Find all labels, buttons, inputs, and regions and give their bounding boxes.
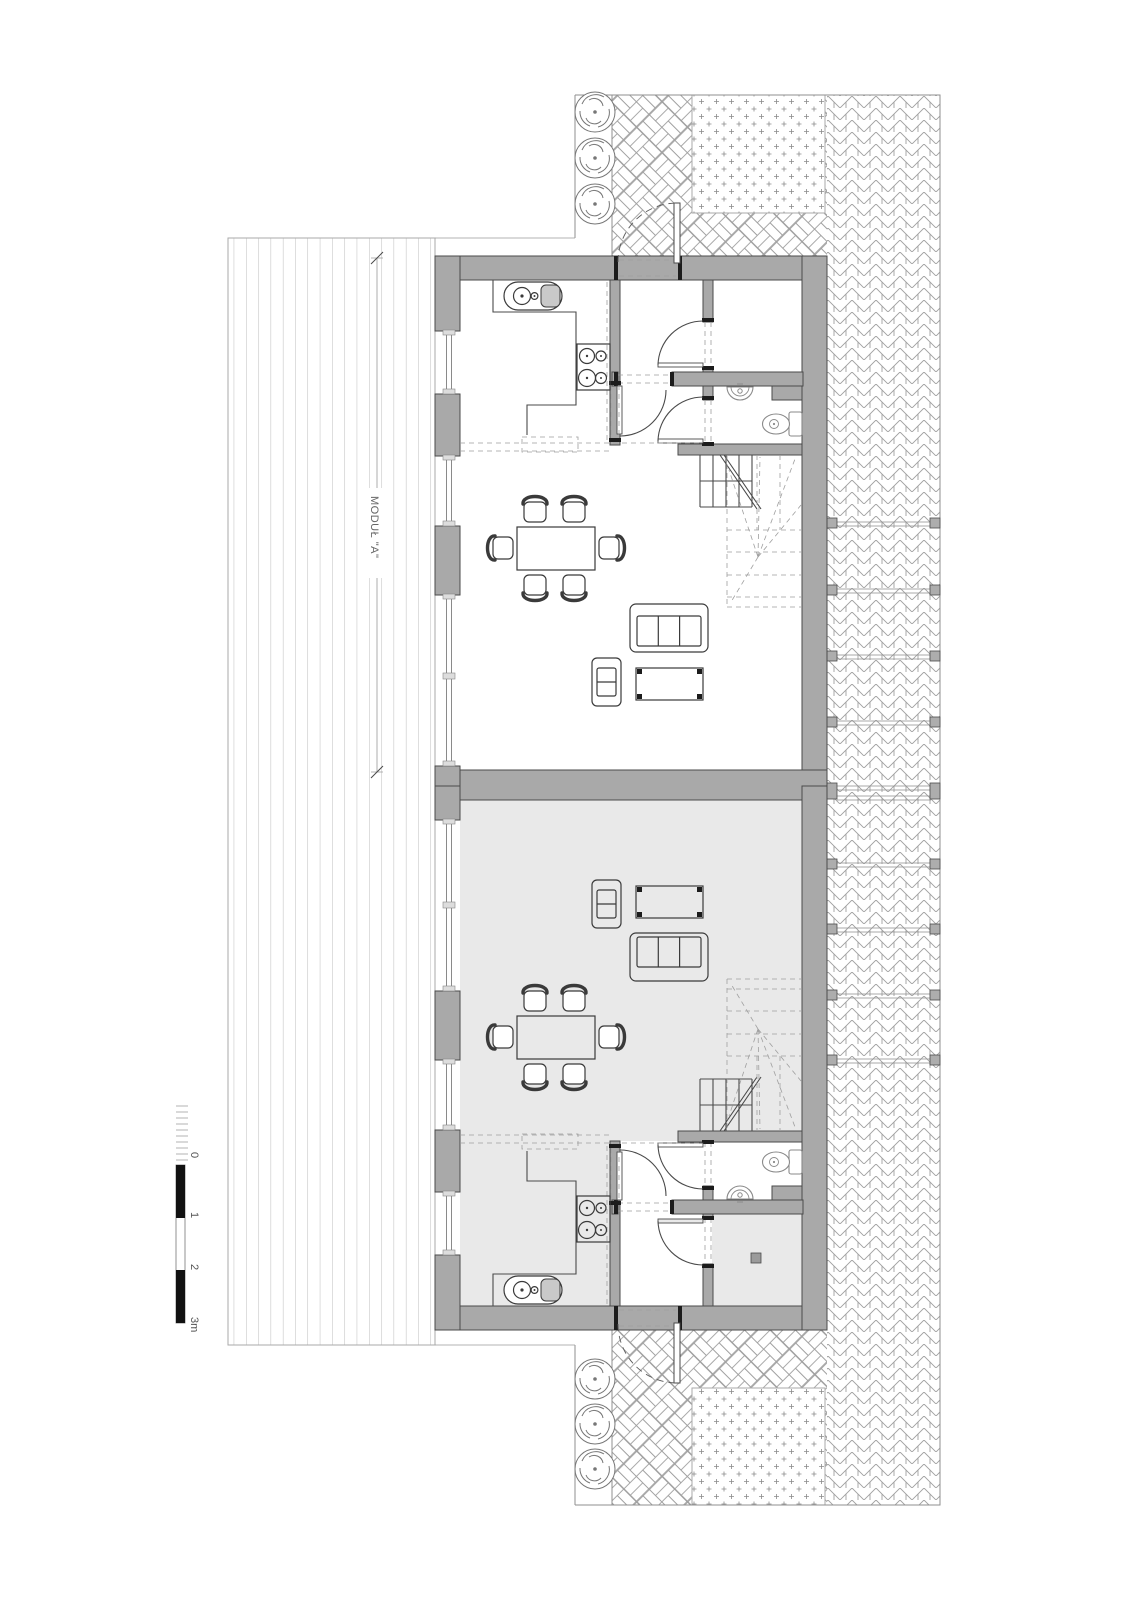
tree-icon <box>575 1404 615 1444</box>
tree-icon <box>575 1359 615 1399</box>
wall-pier <box>435 256 460 331</box>
chair-icon <box>488 536 514 560</box>
wall-pier <box>435 991 460 1060</box>
scale-ruler-ticks <box>176 1106 188 1160</box>
wall-pier <box>435 1130 460 1192</box>
bath-door-b <box>658 1140 714 1190</box>
toilet-icon <box>763 412 803 436</box>
drain-square-b <box>751 1253 761 1263</box>
scale-segment-2-3 <box>176 1270 185 1323</box>
chair-icon <box>523 497 547 523</box>
chair-icon <box>562 497 586 523</box>
toilet-icon <box>763 1150 803 1174</box>
wall-pier <box>435 394 460 456</box>
wall-hall-a <box>703 280 713 322</box>
window <box>443 455 455 526</box>
vestibule-door-b <box>614 1150 674 1214</box>
scale-tick-3m: 3m <box>188 1317 200 1332</box>
wall-hall-b <box>703 1264 713 1306</box>
module-a-label: MODUŁ "A" <box>368 496 380 558</box>
scale-tick-2: 2 <box>188 1264 200 1270</box>
tree-icon <box>575 138 615 178</box>
scale-segment-0-1 <box>176 1165 185 1218</box>
wall-stair-a <box>678 444 802 455</box>
tree-icon <box>575 1449 615 1489</box>
window <box>443 1191 455 1255</box>
dining-table <box>517 527 595 570</box>
cooktop-icon <box>577 344 610 390</box>
armchair <box>592 880 621 928</box>
scale-tick-0: 0 <box>188 1152 200 1158</box>
sofa <box>630 933 708 981</box>
coffee-table <box>636 886 703 918</box>
storage-door-a <box>658 318 714 370</box>
module-b-floor <box>460 800 802 1306</box>
tree-icon <box>575 92 615 132</box>
vestibule-door-a <box>614 372 674 436</box>
dining-table <box>517 1016 595 1059</box>
chair-icon <box>599 536 625 560</box>
wall-pier <box>435 526 460 595</box>
wall-pier <box>435 786 460 820</box>
wall-pier <box>435 1255 460 1330</box>
chair-icon <box>523 575 547 601</box>
bath-door-a <box>658 396 714 446</box>
chair-icon <box>562 575 586 601</box>
wall-right-a <box>802 256 827 800</box>
storage-door-b <box>658 1216 714 1268</box>
window <box>443 1059 455 1130</box>
stairs-a <box>700 455 802 607</box>
kitchen-sink-icon <box>504 1276 562 1304</box>
wall-bath-chunk-b <box>772 1186 802 1200</box>
sofa <box>630 604 708 652</box>
floor-plan-drawing: MODUŁ "A" 0 1 2 3m <box>0 0 1132 1600</box>
gravel-bed-bottom-dots <box>692 1388 825 1505</box>
tree-icon <box>575 184 615 224</box>
wall-right-b <box>802 786 827 1330</box>
living-room-a <box>488 497 709 707</box>
wall-stair-b <box>678 1131 802 1142</box>
floor-plan-sheet: MODUŁ "A" 0 1 2 3m <box>0 0 1132 1600</box>
window <box>443 330 455 394</box>
scale-tick-1: 1 <box>188 1212 200 1218</box>
gravel-bed-top-dots <box>692 95 825 213</box>
window <box>443 594 455 766</box>
kitchen-sink-icon <box>504 282 562 310</box>
wall-bath-chunk-a <box>772 386 802 400</box>
wall-party <box>435 770 827 800</box>
scale-bar: 0 1 2 3m <box>176 1106 200 1332</box>
armchair <box>592 658 621 706</box>
window <box>443 819 455 991</box>
coffee-table <box>636 668 703 700</box>
